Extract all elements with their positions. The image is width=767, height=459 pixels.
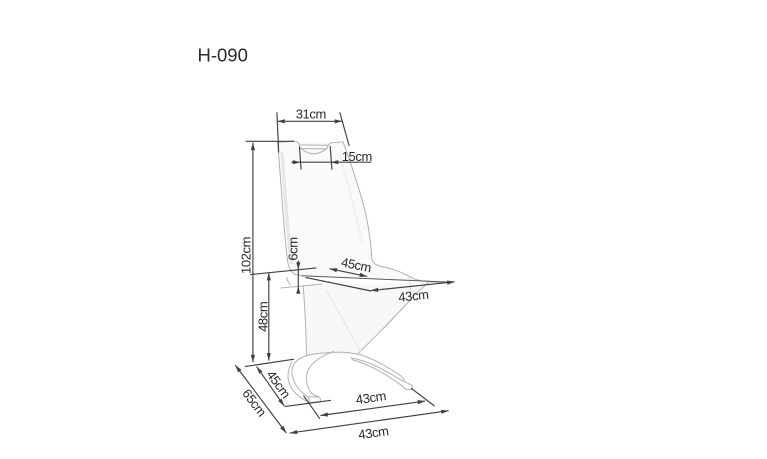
svg-text:31cm: 31cm (296, 107, 326, 122)
svg-text:15cm: 15cm (342, 149, 372, 164)
svg-text:102cm: 102cm (238, 237, 253, 274)
svg-text:H-090: H-090 (198, 45, 248, 66)
svg-text:6cm: 6cm (285, 237, 300, 260)
svg-text:48cm: 48cm (255, 302, 270, 332)
svg-text:43cm: 43cm (398, 287, 430, 305)
